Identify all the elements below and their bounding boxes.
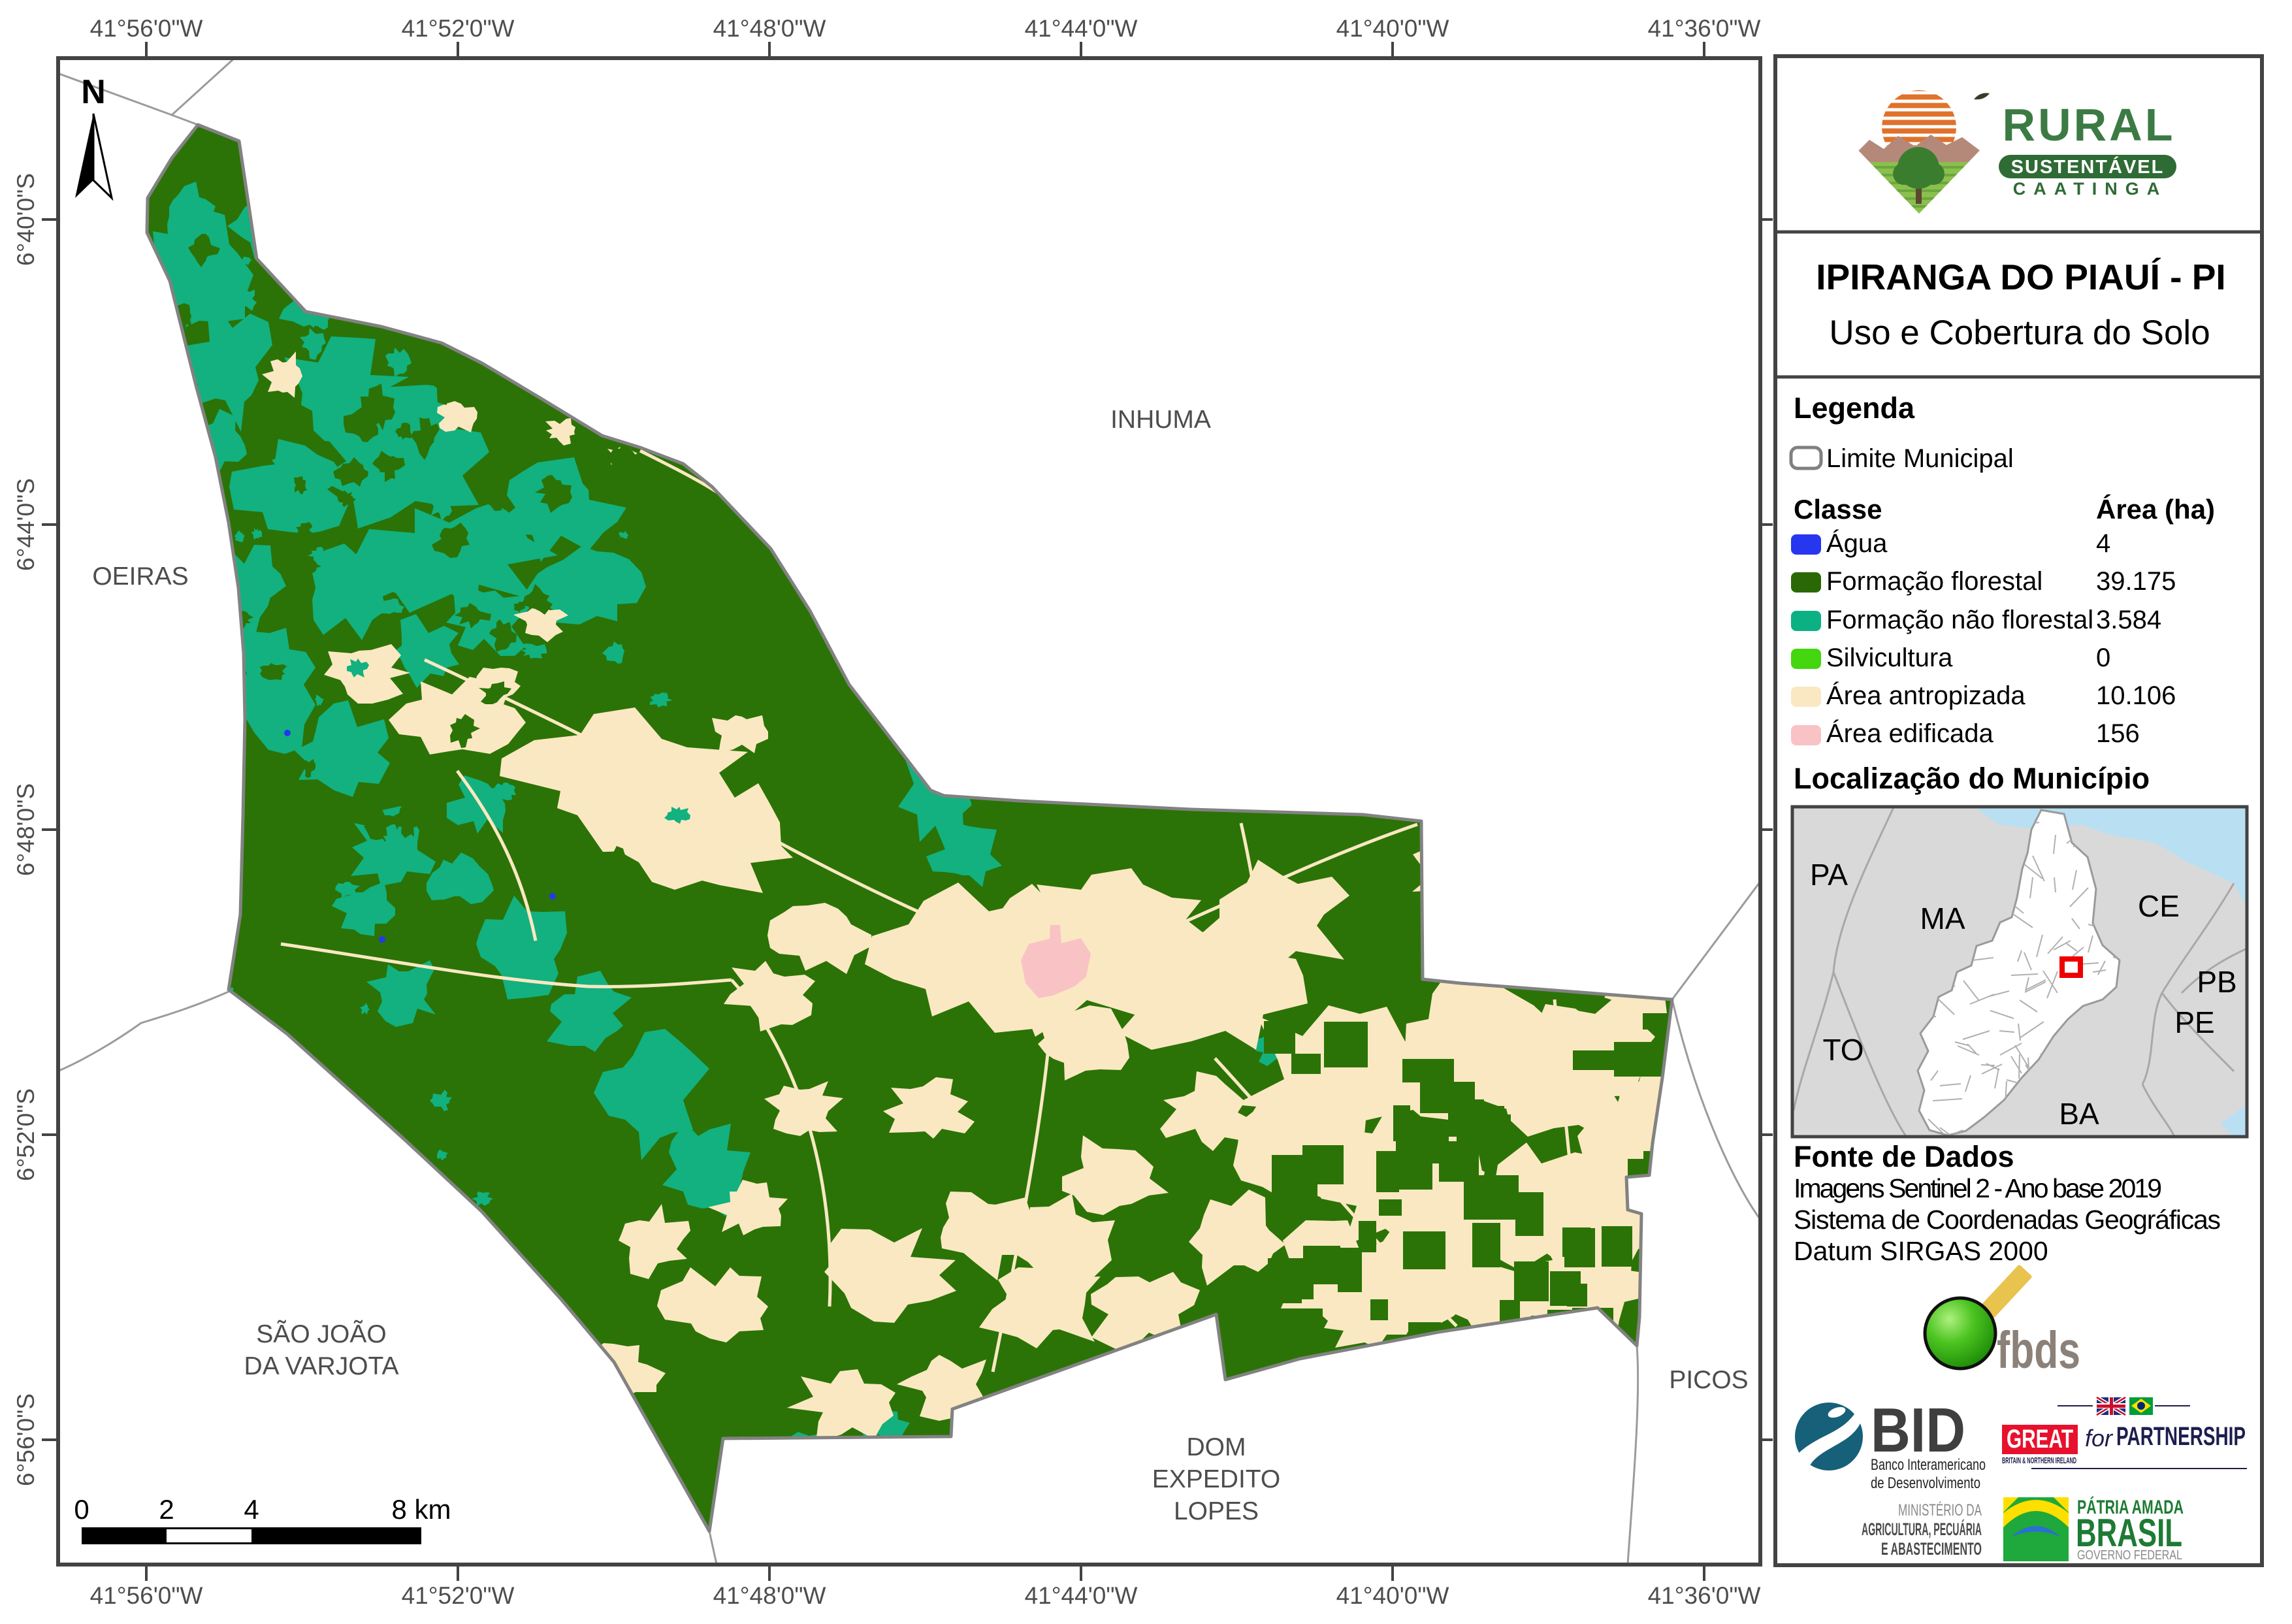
svg-text:41°40'0"W: 41°40'0"W bbox=[1336, 1582, 1449, 1609]
svg-text:Água: Água bbox=[1826, 528, 1888, 558]
svg-text:Fonte de Dados: Fonte de Dados bbox=[1794, 1140, 2014, 1173]
svg-text:IPIRANGA DO PIAUÍ - PI: IPIRANGA DO PIAUÍ - PI bbox=[1816, 257, 2225, 297]
svg-text:41°36'0"W: 41°36'0"W bbox=[1648, 1582, 1761, 1609]
svg-text:SÃO JOÃO: SÃO JOÃO bbox=[256, 1320, 386, 1348]
svg-text:Localização do Município: Localização do Município bbox=[1794, 762, 2150, 795]
svg-text:TO: TO bbox=[1822, 1033, 1864, 1067]
svg-text:Limite Municipal: Limite Municipal bbox=[1826, 444, 2014, 473]
svg-text:41°36'0"W: 41°36'0"W bbox=[1648, 15, 1761, 42]
svg-text:Classe: Classe bbox=[1794, 494, 1882, 525]
svg-text:39.175: 39.175 bbox=[2096, 567, 2176, 596]
svg-text:41°52'0"W: 41°52'0"W bbox=[402, 1582, 515, 1609]
svg-text:CE: CE bbox=[2138, 889, 2180, 923]
svg-text:PICOS: PICOS bbox=[1669, 1366, 1748, 1394]
svg-text:41°48'0"W: 41°48'0"W bbox=[713, 1582, 826, 1609]
svg-text:Silvicultura: Silvicultura bbox=[1826, 643, 1953, 672]
svg-text:MINISTÉRIO DA: MINISTÉRIO DA bbox=[1898, 1501, 1982, 1519]
svg-text:Datum SIRGAS 2000: Datum SIRGAS 2000 bbox=[1794, 1236, 2048, 1266]
svg-text:OEIRAS: OEIRAS bbox=[92, 562, 188, 591]
svg-text:CAATINGA: CAATINGA bbox=[2013, 179, 2167, 199]
svg-text:10.106: 10.106 bbox=[2096, 681, 2176, 710]
svg-text:RURAL: RURAL bbox=[2003, 99, 2176, 150]
svg-text:41°56'0"W: 41°56'0"W bbox=[90, 15, 203, 42]
svg-text:Imagens Sentinel 2 - Ano base: Imagens Sentinel 2 - Ano base 2019 bbox=[1794, 1173, 2162, 1203]
svg-text:BA: BA bbox=[2059, 1097, 2099, 1131]
svg-text:GREAT: GREAT bbox=[2007, 1425, 2073, 1453]
svg-text:41°56'0"W: 41°56'0"W bbox=[90, 1582, 203, 1609]
svg-text:BRITAIN & NORTHERN IRELAND: BRITAIN & NORTHERN IRELAND bbox=[2002, 1455, 2076, 1465]
svg-text:Sistema de Coordenadas Geográf: Sistema de Coordenadas Geográficas bbox=[1794, 1205, 2221, 1235]
svg-text:Formação não florestal: Formação não florestal bbox=[1826, 606, 2093, 634]
svg-text:6°40'0"S: 6°40'0"S bbox=[12, 173, 39, 266]
svg-text:AGRICULTURA, PECUÁRIA: AGRICULTURA, PECUÁRIA bbox=[1862, 1519, 1982, 1539]
svg-text:6°48'0"S: 6°48'0"S bbox=[12, 783, 39, 876]
svg-text:GOVERNO FEDERAL: GOVERNO FEDERAL bbox=[2077, 1548, 2182, 1563]
svg-text:3.584: 3.584 bbox=[2096, 606, 2161, 634]
svg-text:Área edificada: Área edificada bbox=[1826, 719, 1993, 748]
svg-text:LOPES: LOPES bbox=[1174, 1497, 1259, 1525]
svg-text:0: 0 bbox=[74, 1494, 89, 1525]
svg-text:DOM: DOM bbox=[1187, 1433, 1246, 1461]
svg-text:6°56'0"S: 6°56'0"S bbox=[12, 1393, 39, 1486]
svg-text:PA: PA bbox=[1810, 858, 1848, 892]
svg-text:BID: BID bbox=[1871, 1395, 1965, 1465]
svg-text:41°44'0"W: 41°44'0"W bbox=[1025, 15, 1138, 42]
svg-text:PARTNERSHIP: PARTNERSHIP bbox=[2116, 1422, 2246, 1451]
svg-text:fbds: fbds bbox=[1997, 1321, 2080, 1379]
svg-text:for: for bbox=[2085, 1425, 2114, 1452]
svg-text:Área (ha): Área (ha) bbox=[2096, 494, 2215, 525]
svg-text:PE: PE bbox=[2174, 1005, 2214, 1039]
svg-text:MA: MA bbox=[1920, 901, 1965, 935]
svg-text:41°52'0"W: 41°52'0"W bbox=[402, 15, 515, 42]
svg-text:INHUMA: INHUMA bbox=[1110, 406, 1211, 434]
svg-text:Uso e Cobertura do Solo: Uso e Cobertura do Solo bbox=[1829, 314, 2210, 352]
svg-text:Formação florestal: Formação florestal bbox=[1826, 567, 2042, 596]
svg-text:PB: PB bbox=[2197, 965, 2236, 999]
svg-text:DA VARJOTA: DA VARJOTA bbox=[244, 1352, 399, 1380]
svg-text:Área antropizada: Área antropizada bbox=[1826, 681, 2026, 710]
svg-text:N: N bbox=[81, 73, 106, 111]
svg-text:156: 156 bbox=[2096, 719, 2140, 748]
svg-text:41°48'0"W: 41°48'0"W bbox=[713, 15, 826, 42]
svg-text:0: 0 bbox=[2096, 643, 2110, 672]
svg-text:de Desenvolvimento: de Desenvolvimento bbox=[1871, 1474, 1980, 1492]
svg-text:SUSTENTÁVEL: SUSTENTÁVEL bbox=[2011, 155, 2165, 178]
svg-text:41°40'0"W: 41°40'0"W bbox=[1336, 15, 1449, 42]
svg-text:Legenda: Legenda bbox=[1794, 391, 1915, 425]
svg-text:41°44'0"W: 41°44'0"W bbox=[1025, 1582, 1138, 1609]
svg-text:4: 4 bbox=[2096, 529, 2110, 558]
svg-text:6°44'0"S: 6°44'0"S bbox=[12, 478, 39, 571]
svg-text:8 km: 8 km bbox=[391, 1494, 451, 1525]
svg-text:6°52'0"S: 6°52'0"S bbox=[12, 1088, 39, 1181]
svg-text:EXPEDITO: EXPEDITO bbox=[1152, 1465, 1281, 1493]
svg-text:E ABASTECIMENTO: E ABASTECIMENTO bbox=[1881, 1539, 1982, 1559]
svg-text:4: 4 bbox=[244, 1494, 259, 1525]
svg-text:2: 2 bbox=[159, 1494, 174, 1525]
svg-text:Banco Interamericano: Banco Interamericano bbox=[1871, 1456, 1986, 1474]
